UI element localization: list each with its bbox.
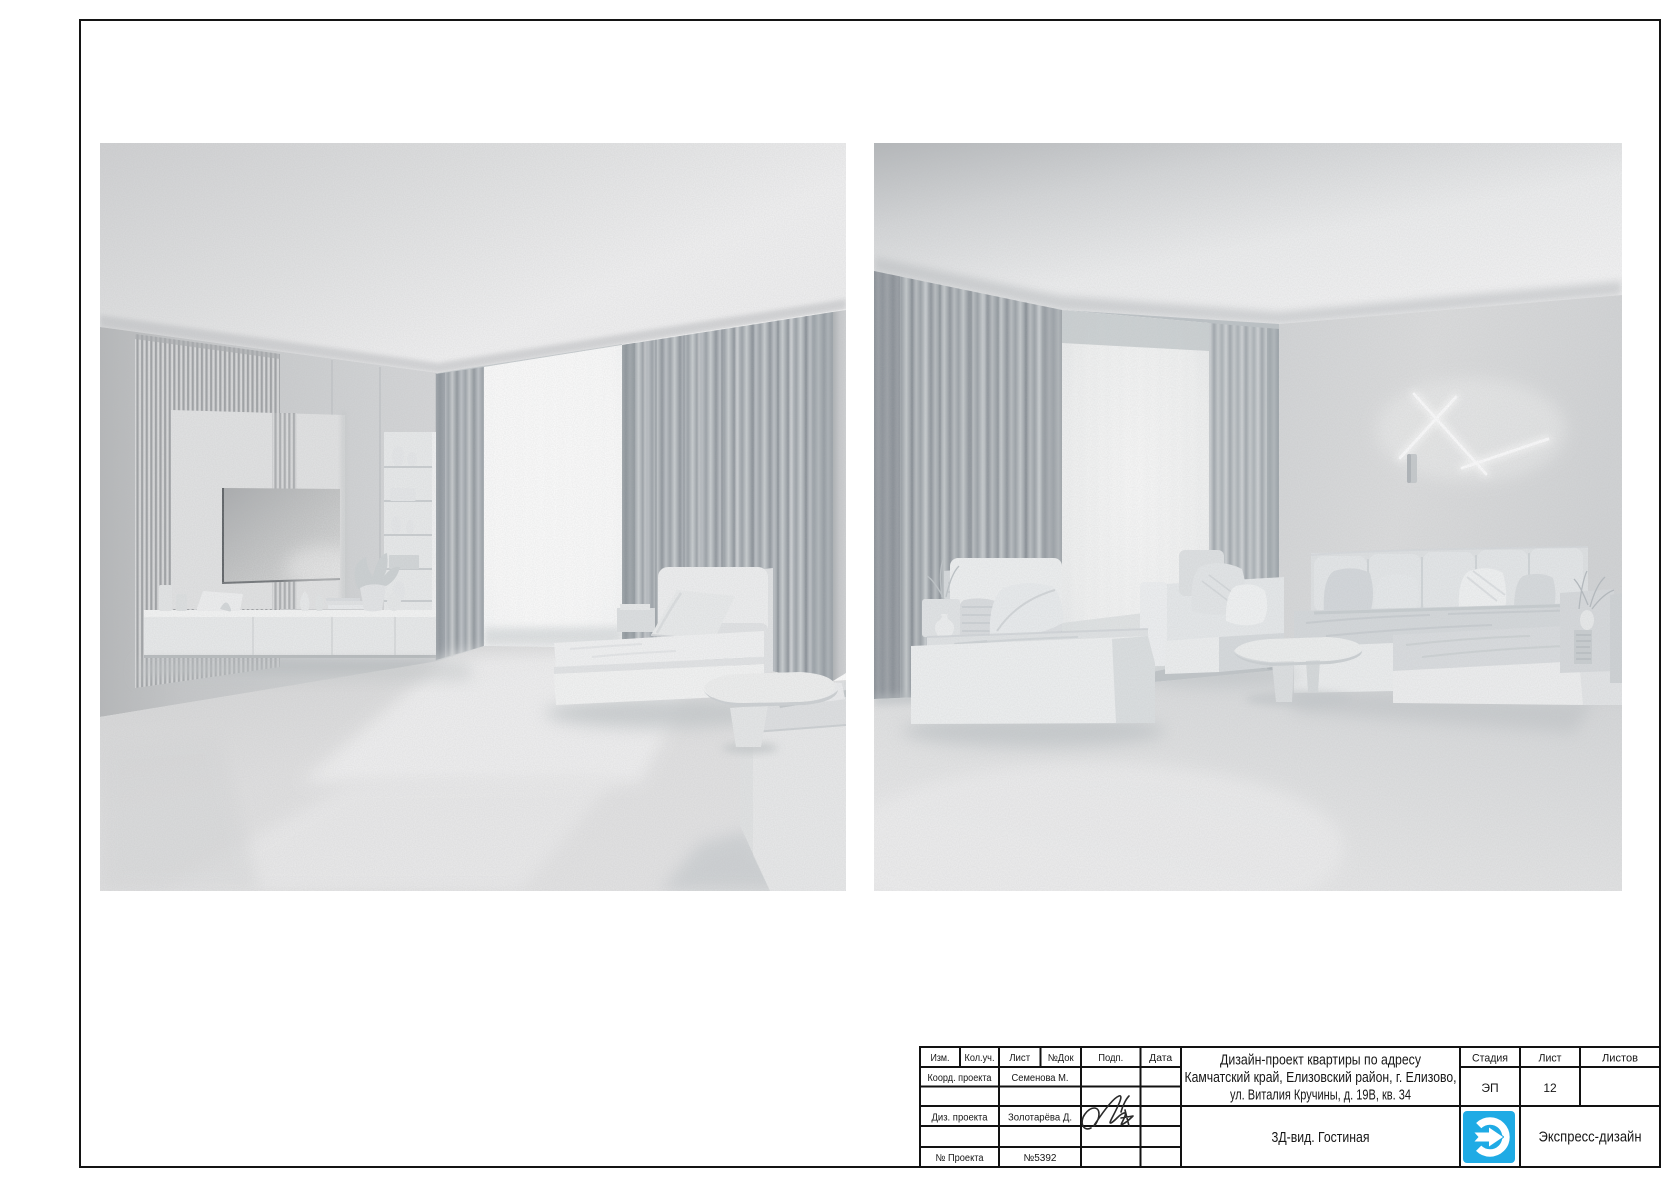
svg-text:Лист: Лист — [1009, 1053, 1030, 1064]
svg-text:ул. Виталия Кручины, д. 19В, к: ул. Виталия Кручины, д. 19В, кв. 34 — [1230, 1087, 1411, 1104]
svg-text:Семенова М.: Семенова М. — [1012, 1073, 1069, 1084]
svg-text:№Док: №Док — [1048, 1053, 1075, 1064]
svg-text:Камчатский край, Елизовский ра: Камчатский край, Елизовский район, г. Ел… — [1185, 1069, 1457, 1086]
svg-text:Кол.уч.: Кол.уч. — [965, 1053, 995, 1064]
svg-text:Стадия: Стадия — [1472, 1053, 1508, 1065]
svg-text:Листов: Листов — [1602, 1053, 1638, 1065]
svg-text:3Д-вид. Гостиная: 3Д-вид. Гостиная — [1272, 1129, 1370, 1146]
svg-text:Изм.: Изм. — [931, 1053, 950, 1064]
svg-text:Коорд. проекта: Коорд. проекта — [928, 1073, 992, 1084]
svg-text:12: 12 — [1543, 1081, 1557, 1095]
svg-text:Дизайн-проект квартиры по адре: Дизайн-проект квартиры по адресу — [1220, 1052, 1421, 1069]
svg-text:ЭП: ЭП — [1481, 1081, 1498, 1095]
svg-text:№ Проекта: № Проекта — [936, 1153, 984, 1164]
svg-text:Диз. проекта: Диз. проекта — [932, 1113, 988, 1124]
svg-text:Экспресс-дизайн: Экспресс-дизайн — [1539, 1129, 1642, 1146]
svg-text:Подп.: Подп. — [1098, 1053, 1123, 1064]
svg-text:Золотарёва Д.: Золотарёва Д. — [1008, 1113, 1072, 1124]
svg-text:Дата: Дата — [1149, 1053, 1172, 1064]
svg-text:Лист: Лист — [1539, 1053, 1562, 1065]
svg-text:№5392: №5392 — [1024, 1153, 1057, 1164]
